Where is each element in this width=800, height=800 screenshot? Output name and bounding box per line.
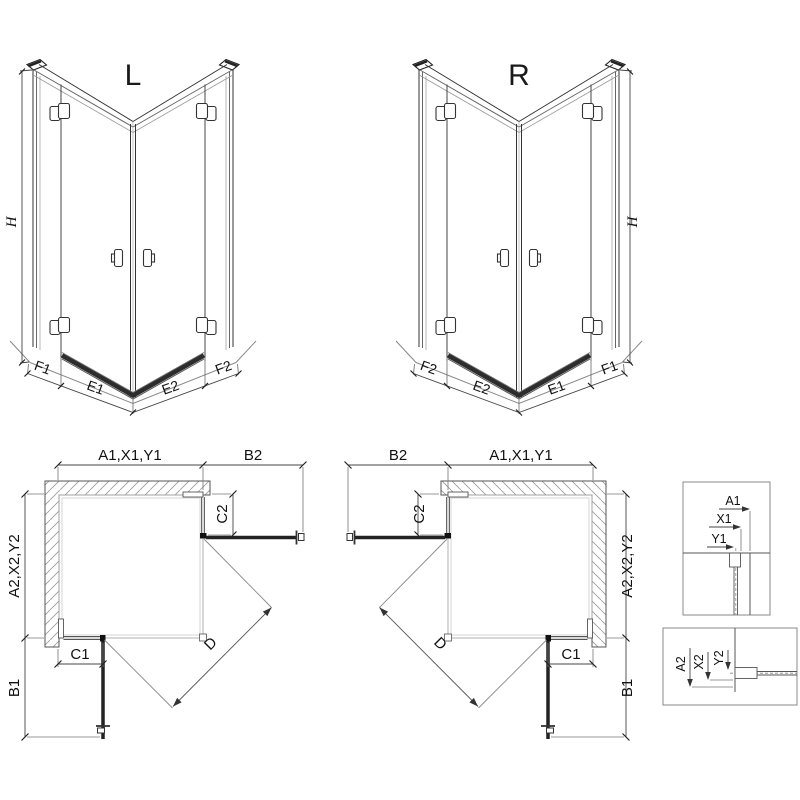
dim-label-a2: A2 [674, 656, 688, 671]
dim-label-b2: B2 [389, 447, 407, 464]
detail-box-horizontal-section: A1 X1 Y1 [683, 482, 770, 615]
technical-drawing: L H F1 E1 E2 F2 R H F2 E2 E1 F1 A1,X1,Y1… [0, 0, 800, 800]
dim-label-b1: B1 [6, 679, 23, 697]
dim-label-b2: B2 [244, 447, 262, 464]
dim-label-a2x2y2: A2,X2,Y2 [619, 534, 636, 597]
dim-label-a1: A1 [725, 494, 740, 508]
dim-label-f2: F2 [213, 357, 234, 378]
dim-label-a1x1y1: A1,X1,Y1 [489, 447, 552, 464]
l-3d-view: L H F1 E1 E2 F2 [4, 59, 256, 416]
dim-label-y1: Y1 [711, 532, 726, 546]
dim-label-h: H [4, 215, 20, 228]
dim-label-x2: X2 [692, 654, 706, 669]
dim-label-c2: C2 [214, 504, 231, 523]
l-plan-view: A1,X1,Y1 B2 A2,X2,Y2 B1 C1 C2 D [6, 447, 307, 741]
dim-label-x1: X1 [716, 512, 731, 526]
r-plan-view: B2 A1,X1,Y1 A2,X2,Y2 B1 C1 C2 D [345, 447, 637, 741]
dim-label-b1: B1 [619, 679, 636, 697]
dim-label-c1: C1 [561, 646, 580, 663]
drawing-canvas: L H F1 E1 E2 F2 R H F2 E2 E1 F1 A1,X1,Y1… [0, 0, 800, 800]
dim-label-a2x2y2: A2,X2,Y2 [6, 534, 23, 597]
dim-label-c2: C2 [411, 504, 428, 523]
detail-box-vertical-section: A2 X2 Y2 [663, 628, 797, 705]
dim-label-h: H [625, 215, 641, 228]
dim-label-f2: F2 [418, 357, 439, 378]
dim-label-c1: C1 [70, 646, 89, 663]
r-3d-view: R H F2 E2 E1 F1 [396, 59, 642, 416]
view-label-l: L [125, 59, 142, 92]
dim-label-f1: F1 [599, 357, 620, 378]
view-label-r: R [508, 59, 530, 92]
dim-label-f1: F1 [32, 357, 53, 378]
dim-label-y2: Y2 [712, 650, 726, 665]
dim-label-a1x1y1: A1,X1,Y1 [98, 447, 161, 464]
